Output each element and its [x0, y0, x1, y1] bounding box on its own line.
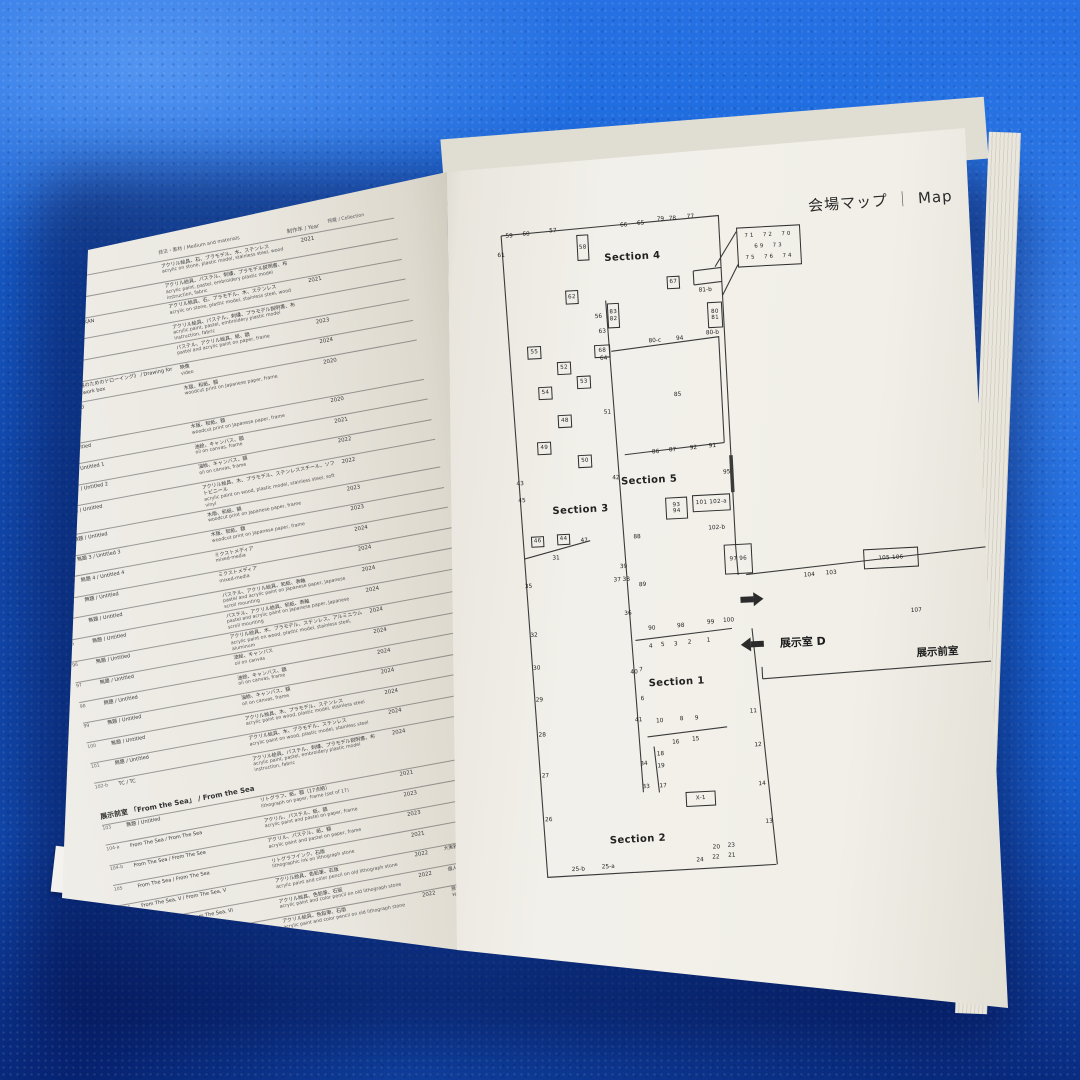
map-number: 42: [612, 475, 620, 481]
map-number: 90: [648, 625, 656, 631]
map-number: 104: [804, 572, 815, 579]
map-number: 7: [639, 667, 643, 673]
map-number: 45: [518, 498, 526, 504]
map-number: 80-c: [648, 338, 661, 345]
map-number: 85: [674, 392, 682, 398]
map-number: 95: [723, 469, 731, 475]
map-number-box: 48: [558, 414, 573, 428]
map-number: 9: [695, 715, 699, 721]
map-number: 61: [497, 253, 505, 259]
map-number: 94: [676, 336, 684, 342]
map-number: 33: [642, 784, 650, 790]
annex-number-row: 75 76 74: [745, 253, 793, 262]
map-number: 81-b: [699, 287, 712, 294]
map-number: 88: [633, 534, 641, 540]
map-number-box: X-1: [685, 790, 716, 807]
map-number: 102-b: [708, 525, 725, 532]
map-number: 12: [754, 742, 762, 748]
map-number: 40: [630, 669, 638, 675]
map-number: 35: [525, 584, 533, 590]
anteroom-label: 展示前室: [916, 643, 959, 660]
map-number: 26: [545, 817, 553, 823]
map-number: 4: [649, 644, 653, 650]
map-number: 6: [641, 696, 645, 702]
map-number: 1: [707, 638, 711, 644]
annex-number-row: 71 72 70: [744, 231, 792, 240]
map-number: 79: [657, 216, 665, 222]
map-number: 5: [661, 642, 665, 648]
map-number: 17: [659, 783, 667, 789]
map-number: 24: [696, 857, 704, 863]
map-number-box: 101 102-a: [692, 493, 731, 512]
map-number: 87: [669, 447, 677, 453]
map-number: 63: [598, 329, 606, 335]
map-number: 77: [687, 214, 695, 220]
venue-map: 71 72 7069 7375 76 74 展示室 D 展示前室 5960576…: [480, 188, 1036, 914]
room-d-label: 展示室 D: [779, 633, 826, 651]
map-number: 51: [604, 409, 612, 415]
map-annex-box: 71 72 7069 7375 76 74: [736, 224, 802, 267]
map-number: 107: [911, 607, 922, 614]
map-number: 91: [709, 443, 717, 449]
map-number: 20: [713, 844, 721, 850]
map-number: 21: [728, 853, 736, 859]
map-number: 56: [595, 314, 603, 320]
map-number: 80-b: [706, 330, 719, 337]
map-number-box: 67: [666, 276, 680, 290]
map-number: 25-a: [602, 864, 615, 871]
map-number-box: 58: [576, 234, 589, 261]
map-number: 22: [712, 854, 720, 860]
map-number-box: 8382: [607, 303, 620, 329]
map-number: 59: [505, 233, 513, 239]
map-number: 19: [657, 763, 665, 769]
map-number: 57: [549, 228, 557, 234]
map-number: 13: [765, 819, 773, 825]
map-number-box: 97 96: [724, 543, 754, 574]
catalog-page: 技法・素材 / Medium and materials 制作年 / Year …: [48, 150, 463, 980]
map-number: 66: [620, 222, 628, 228]
map-page: 会場マップ｜Map 71 72 7069 7375 76 74 展示室 D 展示…: [430, 108, 1008, 1013]
map-number: 8: [680, 716, 684, 722]
map-number: 100: [723, 617, 734, 624]
map-number: 3: [674, 641, 678, 647]
map-number-box: 53: [577, 375, 592, 389]
map-number: 86: [652, 449, 660, 455]
map-number: 43: [516, 481, 524, 487]
map-number-box: 46: [531, 536, 545, 548]
map-number-box: 54: [538, 386, 553, 400]
map-number-box: 44: [557, 534, 571, 546]
map-number: 78: [669, 216, 677, 222]
arrow-left-icon: [740, 637, 764, 652]
map-number: 98: [677, 623, 685, 629]
map-number: 11: [750, 708, 758, 714]
map-number: 14: [758, 781, 766, 787]
map-number: 28: [538, 732, 546, 738]
map-number: 38: [622, 577, 630, 583]
map-number: 39: [620, 564, 628, 570]
annex-number-row: 69 73: [754, 242, 784, 250]
map-number: 15: [692, 736, 700, 742]
map-number: 23: [728, 843, 736, 849]
map-number: 2: [688, 640, 692, 646]
map-number: 37: [613, 577, 621, 583]
map-number: 16: [672, 739, 680, 745]
map-walls: [480, 188, 1036, 914]
map-number: 18: [657, 751, 665, 757]
map-number-box: 62: [565, 290, 579, 305]
map-number: 65: [637, 220, 645, 226]
map-number-box: 49: [537, 442, 552, 456]
map-number: 47: [580, 538, 588, 544]
map-number: 27: [542, 773, 550, 779]
map-number-box: 105 106: [863, 547, 919, 570]
map-number: 30: [533, 665, 541, 671]
map-number: 103: [826, 570, 837, 577]
map-number: 29: [536, 697, 544, 703]
map-number: 32: [530, 633, 538, 639]
map-number-box: 68: [594, 344, 611, 358]
map-number: 36: [624, 611, 632, 617]
map-number-box: 50: [578, 454, 593, 468]
map-number-box: 8081: [707, 301, 723, 328]
map-number-box: 52: [557, 361, 572, 375]
map-number: 41: [635, 717, 643, 723]
map-number: 25-b: [572, 866, 585, 873]
map-number-box: 55: [527, 346, 542, 360]
map-number: 31: [552, 555, 560, 561]
map-number: 60: [522, 231, 530, 237]
map-number: 92: [690, 445, 698, 451]
arrow-right-icon: [740, 592, 764, 607]
map-number: 34: [640, 761, 648, 767]
map-number: 10: [656, 718, 664, 724]
map-number-box: 9394: [665, 497, 688, 520]
map-number: 99: [707, 619, 715, 625]
map-number: 89: [639, 582, 647, 588]
